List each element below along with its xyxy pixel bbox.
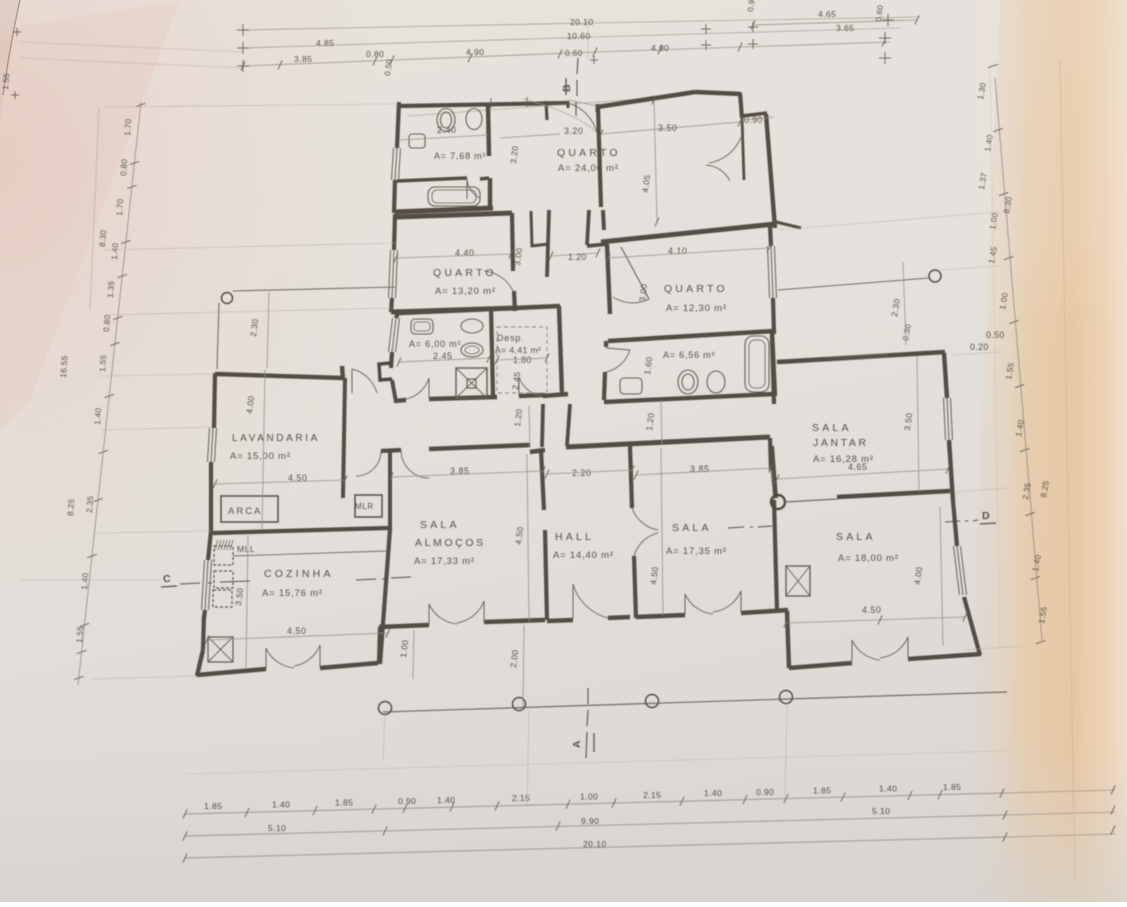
svg-text:1.40: 1.40 bbox=[80, 572, 90, 590]
svg-text:0.80: 0.80 bbox=[366, 49, 384, 59]
svg-text:2.40: 2.40 bbox=[437, 125, 457, 135]
svg-text:A= 15,00 m²: A= 15,00 m² bbox=[230, 451, 291, 462]
svg-text:4.90: 4.90 bbox=[651, 43, 669, 53]
svg-text:0.80: 0.80 bbox=[102, 314, 112, 332]
svg-text:4.40: 4.40 bbox=[455, 248, 475, 258]
svg-text:LAVANDARIA: LAVANDARIA bbox=[232, 433, 320, 444]
svg-text:MLL: MLL bbox=[237, 544, 255, 554]
svg-text:1.20: 1.20 bbox=[568, 252, 587, 262]
svg-text:0.90: 0.90 bbox=[756, 787, 774, 797]
svg-text:1.00: 1.00 bbox=[580, 791, 598, 801]
svg-text:0.50: 0.50 bbox=[986, 330, 1005, 340]
svg-text:1.80: 1.80 bbox=[513, 355, 532, 365]
svg-text:COZINHA: COZINHA bbox=[264, 568, 334, 580]
svg-text:ALMOÇOS: ALMOÇOS bbox=[415, 537, 486, 549]
svg-text:4.65: 4.65 bbox=[848, 462, 868, 472]
svg-text:4.90: 4.90 bbox=[466, 47, 484, 57]
svg-text:0.80: 0.80 bbox=[119, 158, 129, 176]
svg-text:0.90: 0.90 bbox=[398, 796, 416, 806]
svg-text:16.55: 16.55 bbox=[58, 355, 70, 378]
svg-text:4.85: 4.85 bbox=[316, 38, 334, 48]
svg-text:A= 17,33 m²: A= 17,33 m² bbox=[414, 556, 475, 567]
svg-text:1.85: 1.85 bbox=[335, 798, 353, 808]
svg-text:A= 4,41 m²: A= 4,41 m² bbox=[495, 345, 541, 355]
svg-text:0.20: 0.20 bbox=[970, 342, 989, 352]
svg-text:SALA: SALA bbox=[672, 522, 712, 534]
svg-text:A= 18,00 m²: A= 18,00 m² bbox=[838, 553, 899, 564]
svg-text:1.85: 1.85 bbox=[813, 785, 831, 795]
svg-text:1.85: 1.85 bbox=[943, 782, 961, 792]
svg-text:1.55: 1.55 bbox=[1, 73, 11, 91]
svg-text:A= 6,56 m²: A= 6,56 m² bbox=[663, 350, 715, 360]
svg-text:2.15: 2.15 bbox=[512, 793, 530, 803]
svg-text:20.10: 20.10 bbox=[583, 839, 607, 849]
svg-text:A= 17,35 m²: A= 17,35 m² bbox=[666, 546, 727, 557]
svg-text:A= 14,40 m²: A= 14,40 m² bbox=[553, 550, 614, 561]
svg-text:HALL: HALL bbox=[555, 531, 594, 543]
svg-text:5.10: 5.10 bbox=[872, 806, 890, 816]
svg-text:ARCA: ARCA bbox=[228, 506, 262, 517]
svg-text:3.50: 3.50 bbox=[658, 123, 678, 133]
svg-text:A= 24,00 m²: A= 24,00 m² bbox=[558, 163, 619, 174]
svg-text:QUARTO: QUARTO bbox=[433, 267, 497, 279]
svg-text:4.50: 4.50 bbox=[862, 605, 882, 615]
svg-text:3.65: 3.65 bbox=[836, 23, 854, 33]
svg-text:1.40: 1.40 bbox=[93, 407, 103, 425]
svg-text:B: B bbox=[561, 84, 573, 92]
svg-text:2.15: 2.15 bbox=[643, 790, 661, 800]
svg-text:3.85: 3.85 bbox=[690, 464, 710, 474]
svg-text:QUARTO: QUARTO bbox=[557, 147, 621, 159]
svg-text:A= 6,00 m²: A= 6,00 m² bbox=[409, 339, 461, 349]
svg-text:1.55: 1.55 bbox=[98, 354, 108, 372]
svg-text:8.25: 8.25 bbox=[66, 498, 76, 516]
svg-text:1.70: 1.70 bbox=[115, 198, 125, 216]
svg-text:0.90: 0.90 bbox=[744, 115, 763, 125]
svg-text:C: C bbox=[163, 573, 171, 585]
svg-text:A= 13,20 m²: A= 13,20 m² bbox=[435, 286, 496, 297]
svg-text:1.40: 1.40 bbox=[110, 242, 120, 260]
svg-text:A: A bbox=[571, 740, 583, 748]
svg-text:0.60: 0.60 bbox=[565, 49, 583, 58]
svg-text:JANTAR: JANTAR bbox=[813, 437, 869, 449]
svg-text:SALA: SALA bbox=[420, 519, 460, 531]
svg-text:1.35: 1.35 bbox=[106, 280, 116, 298]
svg-text:A= 12,30 m²: A= 12,30 m² bbox=[666, 303, 727, 314]
svg-text:1.40: 1.40 bbox=[437, 795, 455, 805]
svg-text:9.90: 9.90 bbox=[581, 816, 599, 826]
svg-text:SALA: SALA bbox=[812, 422, 852, 434]
svg-text:3.85: 3.85 bbox=[294, 54, 312, 64]
svg-text:1.40: 1.40 bbox=[879, 784, 897, 794]
svg-text:10.60: 10.60 bbox=[567, 31, 591, 41]
svg-text:2.35: 2.35 bbox=[85, 495, 95, 513]
svg-text:A= 7,68 m²: A= 7,68 m² bbox=[434, 151, 486, 161]
svg-text:5.10: 5.10 bbox=[268, 823, 286, 833]
svg-text:1.40: 1.40 bbox=[704, 788, 722, 798]
svg-text:1.85: 1.85 bbox=[204, 801, 222, 811]
svg-text:3.20: 3.20 bbox=[564, 126, 584, 136]
svg-text:1.55: 1.55 bbox=[75, 625, 85, 643]
svg-text:QUARTO: QUARTO bbox=[664, 283, 728, 295]
svg-text:20.10: 20.10 bbox=[570, 17, 594, 27]
svg-text:4.65: 4.65 bbox=[818, 9, 836, 19]
svg-text:D: D bbox=[982, 510, 990, 522]
svg-text:MLR: MLR bbox=[355, 502, 374, 511]
svg-text:A= 15,76 m²: A= 15,76 m² bbox=[262, 588, 323, 599]
svg-text:SALA: SALA bbox=[836, 531, 876, 543]
svg-text:4.50: 4.50 bbox=[287, 626, 307, 636]
svg-text:1.70: 1.70 bbox=[123, 118, 133, 136]
svg-text:Desp.: Desp. bbox=[497, 333, 525, 343]
svg-text:4.10: 4.10 bbox=[668, 246, 688, 256]
svg-text:8.30: 8.30 bbox=[98, 229, 108, 247]
svg-text:1.40: 1.40 bbox=[272, 799, 290, 809]
